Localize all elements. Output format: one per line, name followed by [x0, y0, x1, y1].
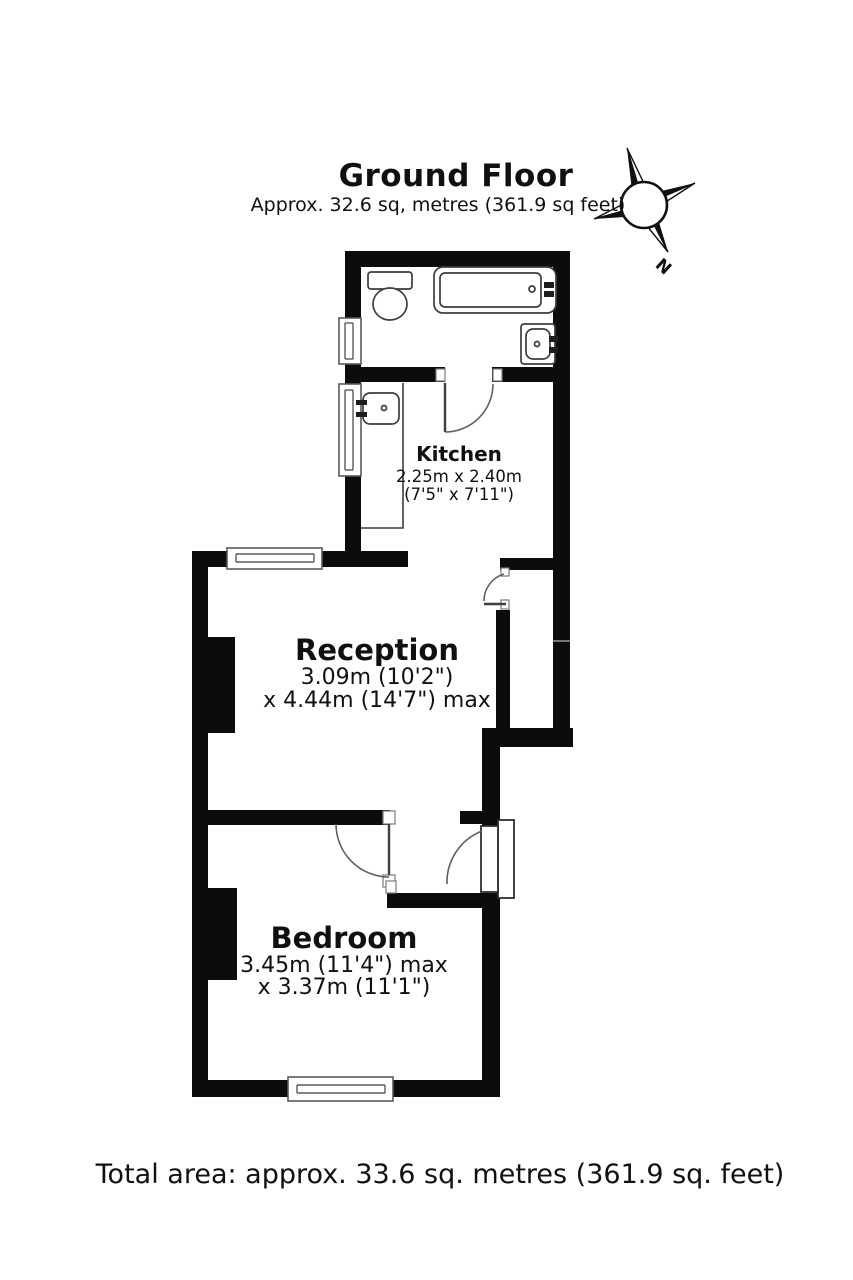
bathtub	[434, 267, 556, 313]
total-area-text: Total area: approx. 33.6 sq. metres (361…	[95, 1159, 785, 1190]
bedroom-label: Bedroom 3.45m (11'4") max x 3.37m (11'1"…	[240, 921, 448, 1000]
chimney-breast-bedroom	[208, 888, 237, 980]
kitchen-dims-metric: 2.25m x 2.40m	[396, 467, 522, 486]
reception-dims-2: x 4.44m (14'7") max	[263, 688, 491, 713]
kitchen-label: Kitchen 2.25m x 2.40m (7'5" x 7'11")	[396, 442, 522, 504]
wall-reception-bedroom	[192, 810, 390, 825]
chimney-breast-reception	[208, 637, 235, 733]
bathroom-window	[339, 318, 361, 364]
entrance-door-frame	[498, 820, 514, 898]
kitchen-window	[339, 384, 361, 476]
floor-plan: N Ground Floor Approx. 32.6 sq, metres (…	[0, 0, 853, 1280]
entrance-door	[386, 820, 514, 898]
wall-right-jog	[482, 728, 573, 747]
reception-window	[227, 548, 322, 569]
reception-label: Reception 3.09m (10'2") x 4.44m (14'7") …	[263, 633, 491, 713]
kitchen-name: Kitchen	[416, 442, 502, 466]
wall-cupboard-inner	[496, 610, 510, 732]
floorplan-page: N Ground Floor Approx. 32.6 sq, metres (…	[0, 0, 853, 1280]
wall-bath-kitchen-left	[361, 367, 445, 382]
wall-reception-right	[482, 747, 500, 826]
toilet	[368, 272, 412, 320]
wall-right-upper	[553, 251, 570, 728]
kitchen-sink	[356, 393, 399, 424]
page-title: Ground Floor	[339, 158, 574, 194]
wall-top	[345, 251, 570, 267]
wall-bedroom-right	[482, 893, 500, 1097]
reception-dims-1: 3.09m (10'2")	[301, 665, 454, 690]
kitchen-dims-imperial: (7'5" x 7'11")	[404, 485, 514, 504]
entrance-door-leaf	[481, 826, 498, 892]
page-subtitle: Approx. 32.6 sq, metres (361.9 sq feet)	[251, 194, 626, 216]
bathroom-sink	[521, 324, 558, 364]
bedroom-name: Bedroom	[271, 921, 418, 955]
cupboard-door	[484, 568, 509, 609]
bedroom-dims-2: x 3.37m (11'1")	[258, 975, 431, 1000]
north-label: N	[651, 255, 675, 279]
reception-name: Reception	[295, 633, 459, 667]
bedroom-window	[288, 1077, 393, 1101]
wall-hall-stub	[460, 811, 482, 824]
